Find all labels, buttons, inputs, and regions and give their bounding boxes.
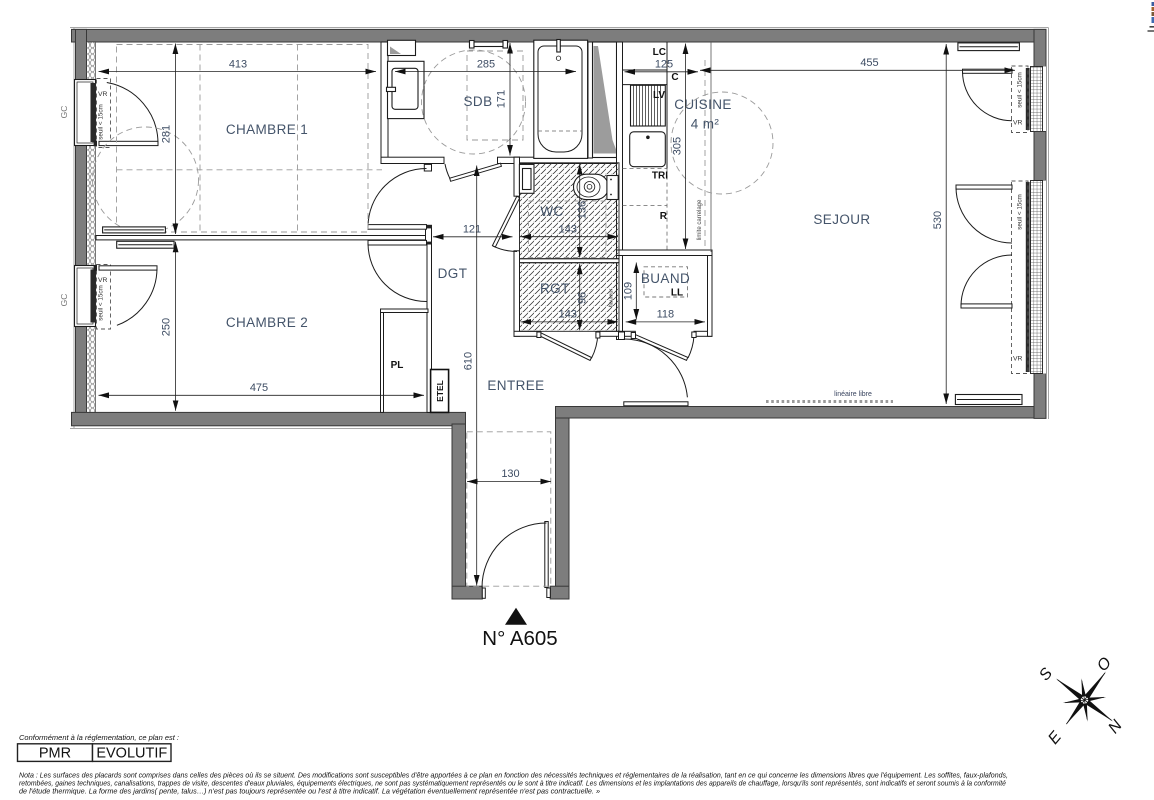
svg-text:R: R (660, 211, 668, 222)
svg-text:VR: VR (98, 91, 108, 98)
svg-text:hauteur: hauteur (609, 289, 615, 308)
svg-text:4 m²: 4 m² (691, 117, 720, 132)
svg-text:seuil < 15cm: seuil < 15cm (1017, 194, 1024, 230)
svg-text:ETEL: ETEL (435, 380, 445, 402)
svg-text:seuil < 15cm: seuil < 15cm (98, 104, 105, 140)
svg-text:530: 530 (932, 211, 944, 229)
svg-text:121: 121 (463, 224, 481, 236)
svg-text:PL: PL (391, 360, 404, 371)
svg-text:linéaire libre: linéaire libre (834, 391, 872, 398)
svg-text:VR: VR (98, 277, 108, 284)
svg-text:PMR: PMR (39, 745, 71, 761)
svg-text:GC: GC (59, 294, 69, 307)
svg-text:305: 305 (672, 137, 684, 155)
svg-text:LV: LV (653, 90, 665, 101)
svg-text:C: C (671, 72, 678, 83)
svg-text:de l'étude thermique. La forme: de l'étude thermique. La forme des jardi… (19, 786, 600, 795)
svg-text:LL: LL (671, 288, 683, 299)
svg-text:seuil < 15cm: seuil < 15cm (1017, 72, 1024, 108)
svg-text:ENTREE: ENTREE (487, 378, 544, 393)
svg-text:130: 130 (501, 468, 519, 480)
svg-text:VR: VR (1013, 356, 1023, 363)
svg-text:118: 118 (657, 309, 675, 321)
svg-text:VR: VR (1013, 120, 1023, 127)
svg-text:96: 96 (577, 292, 589, 304)
svg-text:GC: GC (59, 106, 69, 119)
svg-text:TRI: TRI (652, 171, 668, 182)
svg-text:limite carrelage: limite carrelage (697, 199, 703, 240)
svg-text:285: 285 (477, 59, 495, 71)
svg-text:EVOLUTIF: EVOLUTIF (96, 745, 167, 761)
svg-text:136: 136 (577, 201, 589, 219)
svg-text:125: 125 (655, 59, 673, 71)
svg-text:N° A605: N° A605 (482, 627, 557, 650)
svg-text:109: 109 (623, 282, 635, 300)
svg-text:seuil < 15cm: seuil < 15cm (98, 285, 105, 321)
svg-text:WC: WC (540, 204, 563, 219)
svg-text:143: 143 (559, 224, 577, 236)
svg-text:610: 610 (463, 352, 475, 370)
svg-text:DGT: DGT (438, 266, 468, 281)
svg-text:475: 475 (250, 382, 268, 394)
svg-text:413: 413 (229, 59, 247, 71)
svg-text:171: 171 (496, 90, 508, 108)
svg-text:SDB: SDB (464, 94, 493, 109)
svg-text:RGT: RGT (540, 281, 570, 296)
svg-text:CHAMBRE 2: CHAMBRE 2 (226, 315, 308, 330)
svg-text:455: 455 (860, 57, 878, 69)
svg-text:LC: LC (653, 47, 666, 58)
svg-text:SEJOUR: SEJOUR (813, 212, 870, 227)
svg-text:281: 281 (161, 125, 173, 143)
svg-text:BUAND: BUAND (641, 271, 690, 286)
svg-text:143: 143 (559, 309, 577, 321)
svg-text:250: 250 (161, 318, 173, 336)
svg-text:CHAMBRE 1: CHAMBRE 1 (226, 122, 308, 137)
svg-text:Conformément à la réglementati: Conformément à la réglementation, ce pla… (19, 733, 179, 742)
